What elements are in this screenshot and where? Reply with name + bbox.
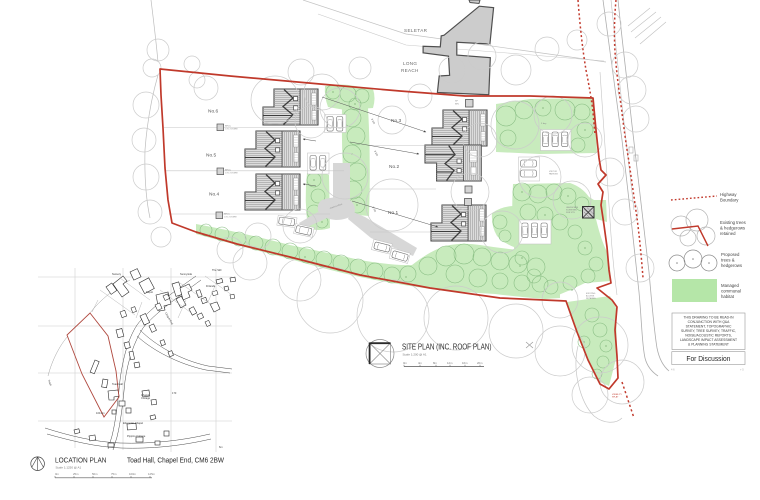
svg-text:Toad Hall: Toad Hall: [112, 382, 123, 386]
svg-text:SELETAR: SELETAR: [404, 28, 428, 33]
svg-text:Highway: Highway: [720, 192, 737, 197]
svg-text:STATEMENT, TOPOGRAPHIC: STATEMENT, TOPOGRAPHIC: [686, 325, 732, 329]
svg-text:ACCESS: ACCESS: [586, 295, 595, 298]
svg-text:The Still: The Still: [212, 268, 222, 272]
svg-text:75m: 75m: [111, 472, 117, 476]
svg-text:No.1: No.1: [388, 210, 398, 216]
svg-text:Nursery: Nursery: [112, 272, 122, 276]
svg-text:THIS DRAWING TO BE READ-IN: THIS DRAWING TO BE READ-IN: [683, 316, 734, 320]
svg-text:173: 173: [172, 391, 177, 395]
svg-text:& PLANNING STATEMENT: & PLANNING STATEMENT: [688, 343, 729, 347]
svg-text:0m: 0m: [55, 472, 60, 476]
svg-text:6m: 6m: [219, 445, 223, 449]
svg-text:Boundary: Boundary: [720, 198, 739, 203]
svg-text:8m: 8m: [433, 361, 438, 365]
svg-text:SUB STN: SUB STN: [566, 212, 575, 214]
svg-text:125m: 125m: [148, 472, 156, 476]
svg-text:LANDSCAPE IMPACT ASSESSMENT: LANDSCAPE IMPACT ASSESSMENT: [680, 338, 737, 342]
svg-text:Proposed: Proposed: [721, 252, 740, 257]
svg-text:SURVEY, TREE SURVEY, TRAFFIC,: SURVEY, TREE SURVEY, TRAFFIC,: [681, 329, 736, 333]
svg-text:No.2: No.2: [389, 164, 399, 170]
svg-text:LONG: LONG: [403, 61, 417, 66]
svg-text:Existing trees: Existing trees: [720, 220, 746, 225]
svg-text:Toad Hall, Chapel End, CM6 2BW: Toad Hall, Chapel End, CM6 2BW: [127, 458, 224, 465]
svg-text:PARKING: PARKING: [549, 173, 558, 176]
svg-text:16m: 16m: [462, 361, 468, 365]
svg-text:No.6: No.6: [208, 109, 218, 115]
svg-text:LANDSCAPE: LANDSCAPE: [566, 206, 579, 209]
svg-text:communal: communal: [721, 289, 741, 294]
svg-text:+ 5: + 5: [740, 368, 744, 372]
svg-text:4 6: 4 6: [671, 368, 675, 372]
svg-text:hedgerows: hedgerows: [721, 263, 742, 268]
svg-text:REACH: REACH: [401, 68, 419, 73]
svg-text:CYC STORE: CYC STORE: [224, 216, 237, 218]
svg-text:CYC STORE: CYC STORE: [225, 172, 238, 174]
svg-text:BIN &: BIN &: [224, 214, 230, 216]
svg-text:12m: 12m: [447, 361, 453, 365]
svg-text:Depot: Depot: [146, 290, 153, 294]
svg-text:Ebenezer Chapel: Ebenezer Chapel: [123, 421, 143, 425]
svg-text:No.5: No.5: [206, 153, 216, 159]
svg-text:Scale 1:1250 @ A1: Scale 1:1250 @ A1: [56, 466, 82, 470]
svg-text:NOISE/ACOUSTIC REPORTS,: NOISE/ACOUSTIC REPORTS,: [685, 334, 732, 338]
svg-text:LOCATION PLAN: LOCATION PLAN: [55, 456, 107, 465]
svg-text:100m: 100m: [129, 472, 137, 476]
svg-text:0m: 0m: [403, 361, 408, 365]
svg-text:CYC STORE: CYC STORE: [225, 128, 238, 130]
svg-text:trees &: trees &: [721, 258, 735, 263]
svg-text:20m: 20m: [477, 361, 483, 365]
svg-text:No.4: No.4: [209, 192, 219, 198]
svg-text:BIN &: BIN &: [225, 126, 231, 128]
svg-text:SITE PLAN (INC. ROOF PLAN): SITE PLAN (INC. ROOF PLAN): [402, 343, 492, 352]
svg-text:100.2m: 100.2m: [96, 411, 105, 415]
svg-text:Sunnyside: Sunnyside: [180, 272, 193, 276]
svg-text:retained: retained: [720, 231, 736, 236]
svg-text:Cottage: Cottage: [141, 396, 151, 400]
svg-text:CONJUNCTION WITH Q&A: CONJUNCTION WITH Q&A: [688, 320, 731, 324]
svg-text:& hedgerows: & hedgerows: [720, 226, 745, 231]
svg-text:4m: 4m: [418, 361, 423, 365]
svg-text:habitat: habitat: [721, 294, 735, 299]
svg-text:25m: 25m: [73, 472, 79, 476]
svg-text:Scale 1:200 @ A1: Scale 1:200 @ A1: [403, 353, 427, 357]
svg-text:Managed: Managed: [721, 283, 740, 288]
svg-text:SPLAY: SPLAY: [612, 396, 619, 399]
svg-text:BIN: BIN: [455, 103, 459, 105]
svg-text:BIN &: BIN &: [225, 170, 231, 172]
svg-text:3 bay: 3 bay: [541, 123, 547, 125]
svg-text:For Discussion: For Discussion: [686, 354, 730, 363]
svg-text:Pippins Cottage: Pippins Cottage: [127, 434, 146, 438]
svg-text:Firlands: Firlands: [206, 284, 216, 288]
svg-text:RETAINED: RETAINED: [586, 297, 597, 300]
svg-text:50m: 50m: [92, 472, 98, 476]
